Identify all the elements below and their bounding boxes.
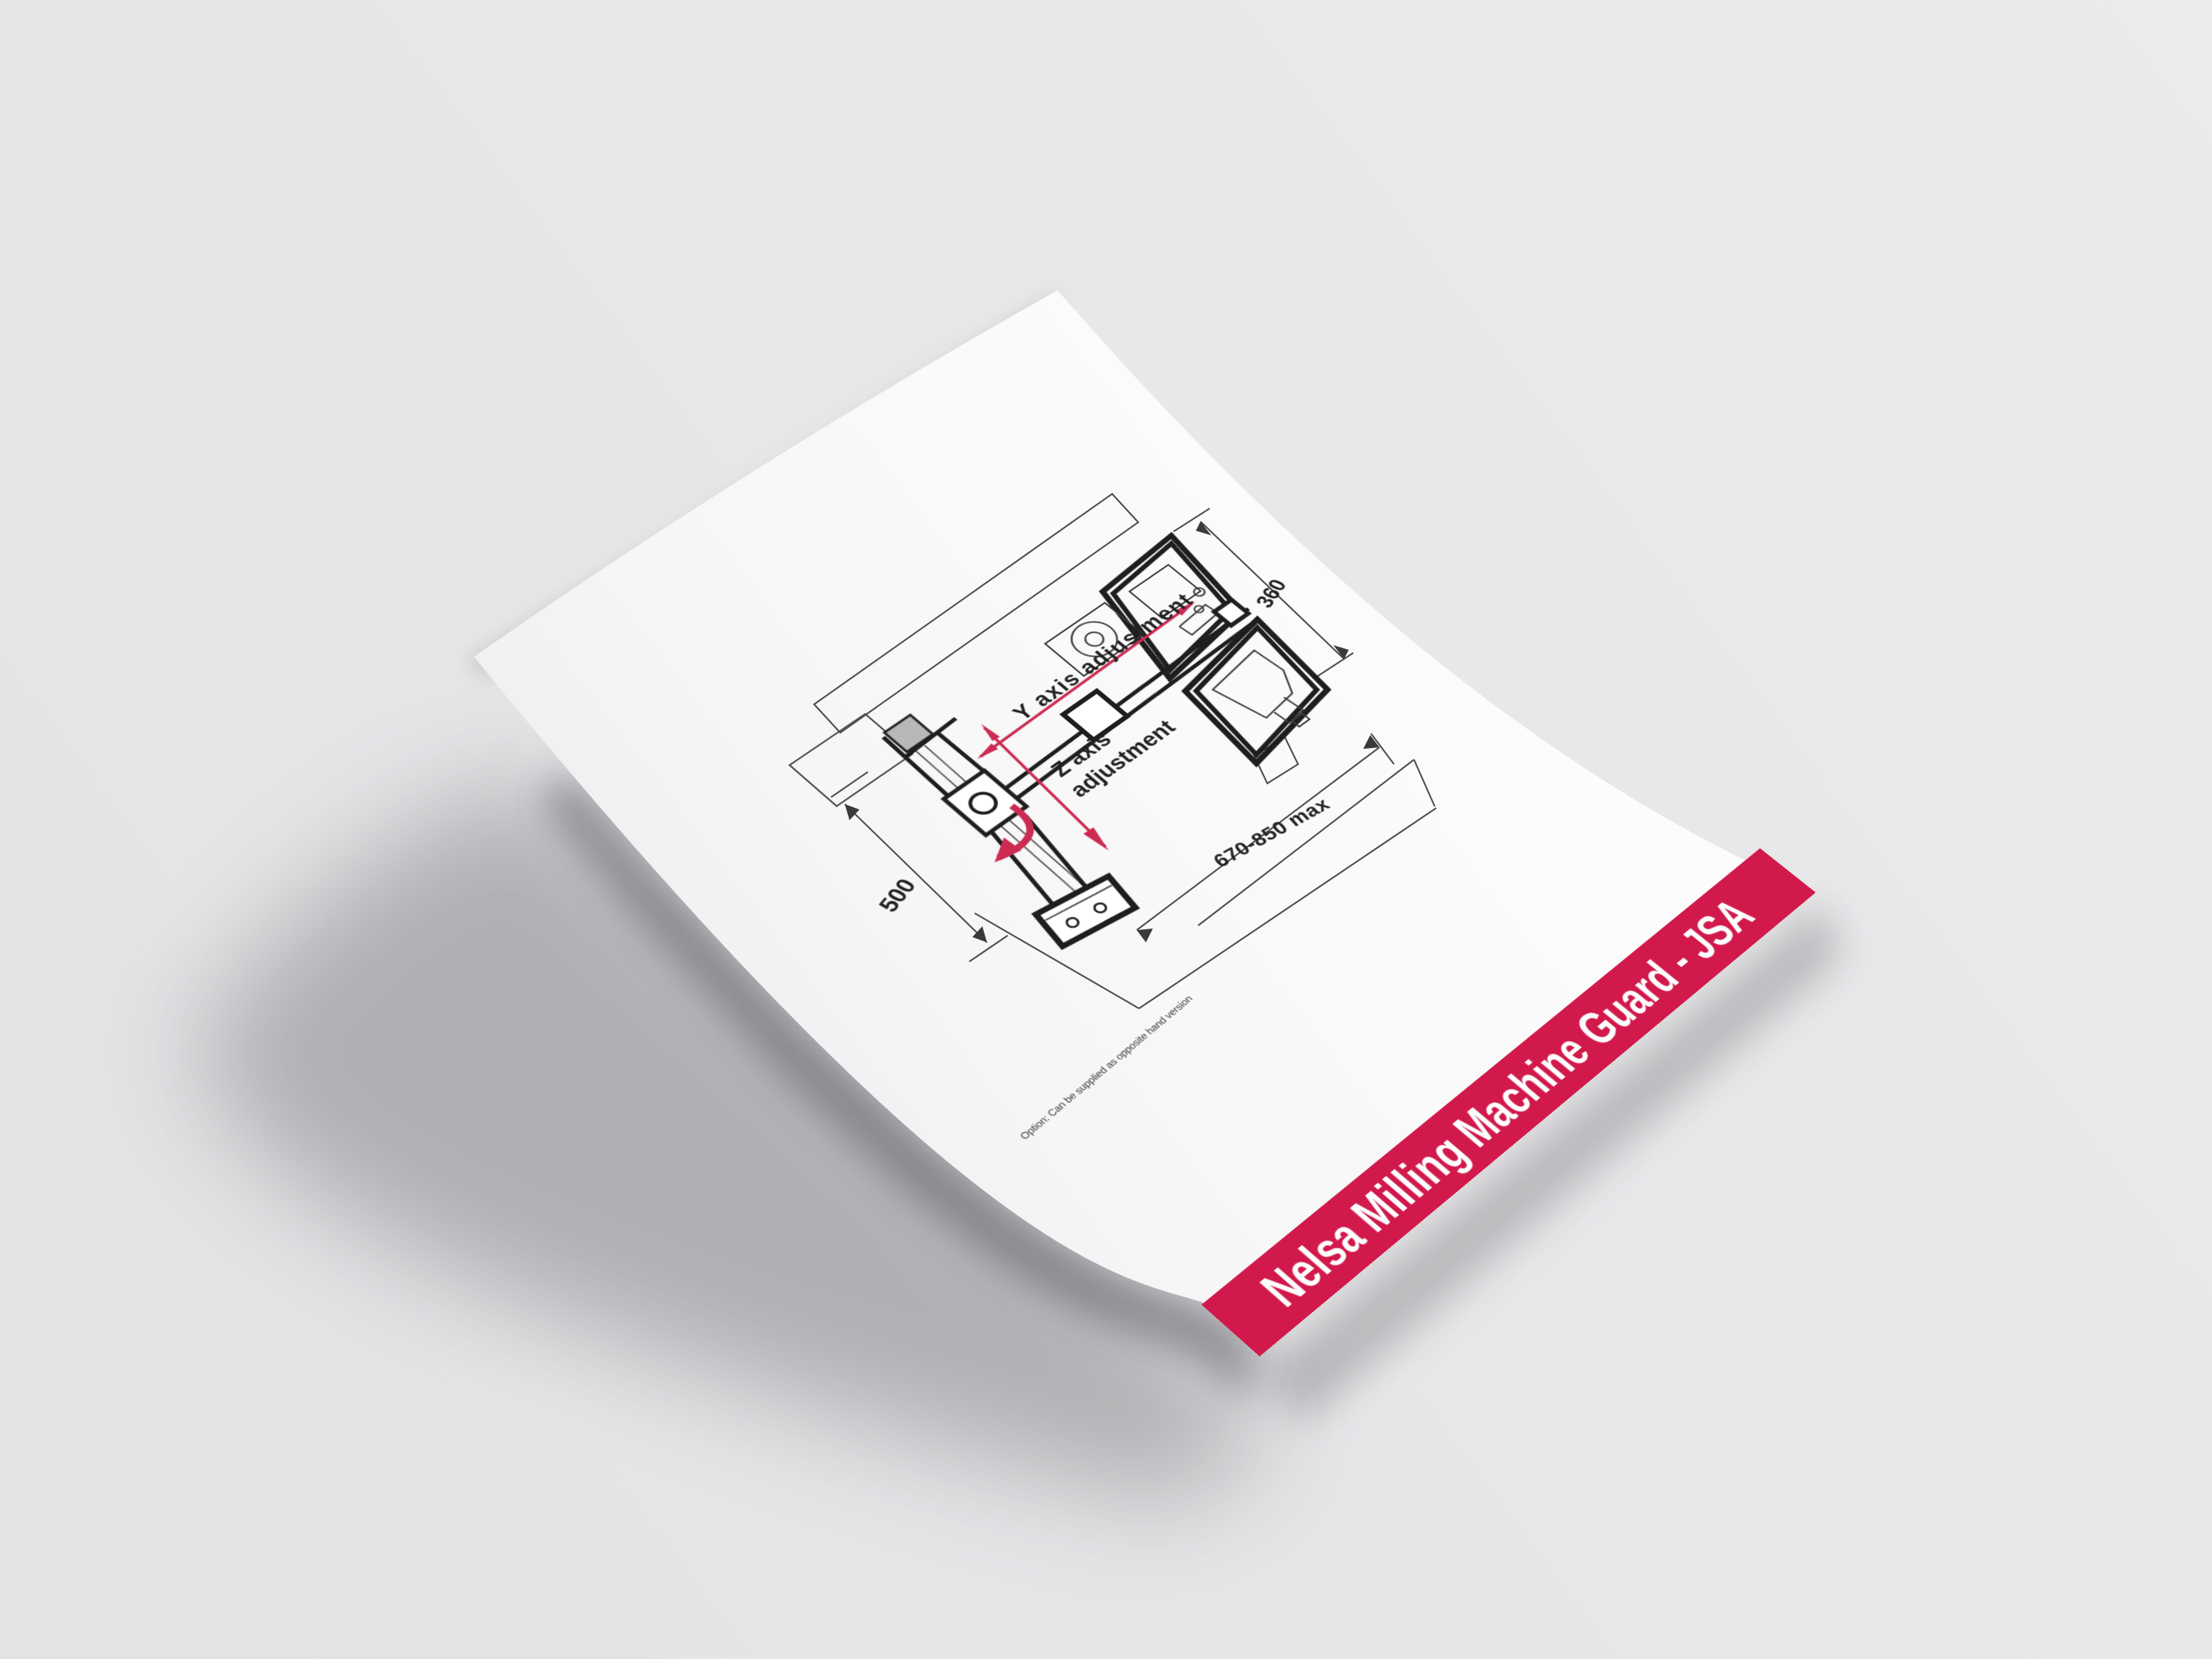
svg-text:360: 360 (1251, 576, 1292, 611)
svg-text:Option: Can be supplied as opp: Option: Can be supplied as opposite hand… (1018, 993, 1195, 1141)
svg-text:500: 500 (874, 875, 922, 916)
svg-text:670-850 max: 670-850 max (1210, 794, 1335, 871)
